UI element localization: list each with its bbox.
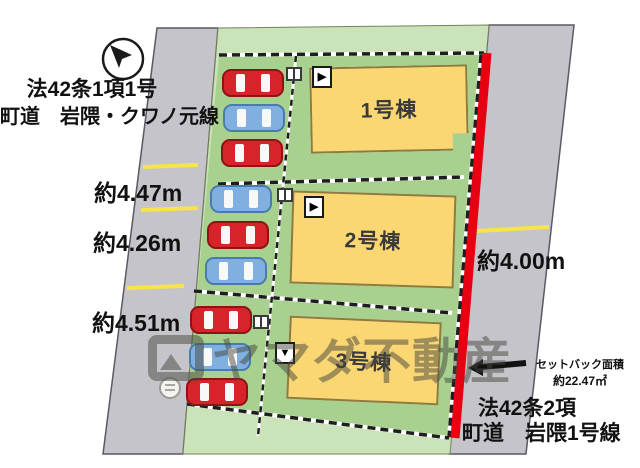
building-1-label: 1号棟 xyxy=(360,93,417,124)
road-width-label-2: 約4.26m xyxy=(93,224,181,258)
building-3-label: 3号棟 xyxy=(335,344,393,376)
entrance-marker-icon-1: ▶ xyxy=(312,66,332,88)
parked-car-blue xyxy=(223,104,285,132)
building-3: 3号棟 xyxy=(286,316,441,406)
site-plan: 1号棟 2号棟 3号棟 ▶ ▶ ▼ 法42条1項1号 町道 岩隈・クワノ元線 約… xyxy=(0,0,640,468)
parked-car-red xyxy=(190,306,252,334)
road-width-label-1: 約4.47m xyxy=(94,174,182,208)
parked-car-red xyxy=(221,139,283,167)
survey-marker xyxy=(277,188,293,202)
survey-marker xyxy=(253,315,269,329)
setback-note: セットバック面積 約22.47㎡ xyxy=(528,356,632,389)
entrance-marker-icon-2: ▶ xyxy=(304,196,324,218)
road-width-label-3: 約4.51m xyxy=(92,304,180,338)
left-road-law-label: 法42条1項1号 xyxy=(2,73,182,103)
setback-area: 約22.47㎡ xyxy=(528,372,632,389)
parked-car-blue xyxy=(189,343,251,371)
parked-car-blue xyxy=(205,257,267,285)
right-road-name-label: 町道 岩隈1号線 xyxy=(462,417,621,447)
entrance-marker-icon-3: ▼ xyxy=(275,342,295,364)
parked-car-blue xyxy=(210,185,272,213)
building-2-label: 2号棟 xyxy=(344,224,402,256)
survey-marker xyxy=(286,67,302,81)
left-road-name-label: 町道 岩隈・クワノ元線 xyxy=(0,100,216,129)
building-1: 1号棟 xyxy=(309,64,469,153)
parked-car-red xyxy=(207,221,269,249)
parked-car-red xyxy=(186,378,248,406)
setback-title: セットバック面積 xyxy=(528,356,632,372)
utility-pole-icon xyxy=(159,377,181,399)
parked-car-red xyxy=(222,69,284,97)
setback-arrow-icon xyxy=(466,356,528,378)
road-width-label-right: 約4.00m xyxy=(477,242,565,276)
